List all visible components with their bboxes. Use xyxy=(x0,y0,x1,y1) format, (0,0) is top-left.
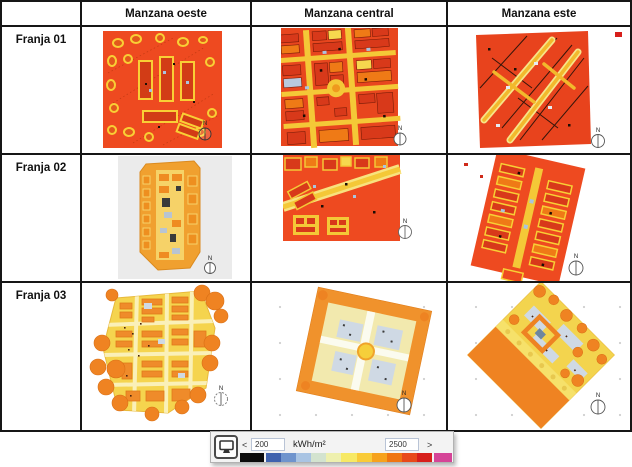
column-header-este: Manzana este xyxy=(448,2,630,25)
radiation-map-franja03-este: N xyxy=(448,283,630,430)
map-cell-franja03-este: N xyxy=(448,283,630,430)
legend-max-input[interactable] xyxy=(385,438,419,451)
corner-header-cell xyxy=(2,2,80,25)
svg-text:N: N xyxy=(208,256,212,262)
radiation-map-franja01-central: N xyxy=(281,28,409,150)
ramp-color-segment xyxy=(402,453,417,462)
column-header-central: Manzana central xyxy=(252,2,446,25)
svg-text:N: N xyxy=(398,126,402,132)
svg-text:N: N xyxy=(596,393,600,399)
radiation-map-franja02-central: N xyxy=(283,155,413,247)
legend-toolbar: < kWh/m² > xyxy=(210,431,454,463)
map-cell-franja01-este: N xyxy=(448,27,630,153)
page: Manzana oeste Manzana central Manzana es… xyxy=(0,0,632,467)
radiation-map-franja03-oeste: N xyxy=(82,283,250,430)
svg-text:N: N xyxy=(596,128,600,134)
map-cell-franja03-central: N xyxy=(252,283,446,430)
radiation-map-franja02-este: N xyxy=(448,155,630,281)
ramp-color-segment xyxy=(357,453,372,462)
north-arrow-icon: N xyxy=(592,128,605,148)
map-cell-franja01-oeste: N xyxy=(82,27,250,153)
map-cell-franja01-central: N xyxy=(252,27,446,153)
svg-text:N: N xyxy=(203,121,207,127)
legend-black-swatch xyxy=(240,453,264,462)
north-arrow-icon: N xyxy=(591,393,605,414)
map-cell-franja02-oeste: N xyxy=(82,155,250,281)
ramp-color-segment xyxy=(341,453,356,462)
radiation-map-franja02-oeste: N xyxy=(118,156,232,279)
comparison-table: Manzana oeste Manzana central Manzana es… xyxy=(0,0,632,432)
svg-text:N: N xyxy=(402,391,406,397)
radiation-map-franja03-central: N xyxy=(252,283,446,430)
map-cell-franja03-oeste: N xyxy=(82,283,250,430)
ramp-color-segment xyxy=(311,453,326,462)
row-label-franja-02: Franja 02 xyxy=(2,155,80,281)
map-cell-franja02-central: N xyxy=(252,155,446,281)
ramp-color-segment xyxy=(387,453,402,462)
north-arrow-icon: N xyxy=(215,386,228,406)
svg-text:N: N xyxy=(574,254,578,260)
ramp-color-segment xyxy=(281,453,296,462)
row-label-franja-01: Franja 01 xyxy=(2,27,80,153)
legend-unit-label: kWh/m² xyxy=(293,439,326,450)
ramp-color-segment xyxy=(296,453,311,462)
row-label-franja-03: Franja 03 xyxy=(2,283,80,430)
legend-overflow-swatch xyxy=(434,453,452,462)
ramp-color-segment xyxy=(266,453,281,462)
radiation-map-franja01-oeste: N xyxy=(103,31,222,148)
map-cell-franja02-este: N xyxy=(448,155,630,281)
legend-ramp xyxy=(266,453,432,462)
svg-text:N: N xyxy=(403,219,407,225)
ramp-color-segment xyxy=(417,453,432,462)
column-header-oeste: Manzana oeste xyxy=(82,2,250,25)
legend-increase-button[interactable]: > xyxy=(427,439,432,451)
legend-decrease-button[interactable]: < xyxy=(242,439,247,451)
ramp-color-segment xyxy=(372,453,387,462)
north-arrow-icon: N xyxy=(399,219,412,239)
north-arrow-icon: N xyxy=(569,254,583,275)
legend-min-input[interactable] xyxy=(251,438,285,451)
display-settings-button[interactable] xyxy=(214,435,238,459)
monitor-icon xyxy=(219,440,234,454)
ramp-color-segment xyxy=(326,453,341,462)
svg-text:N: N xyxy=(219,386,223,392)
radiation-map-franja01-este: N xyxy=(448,28,630,152)
